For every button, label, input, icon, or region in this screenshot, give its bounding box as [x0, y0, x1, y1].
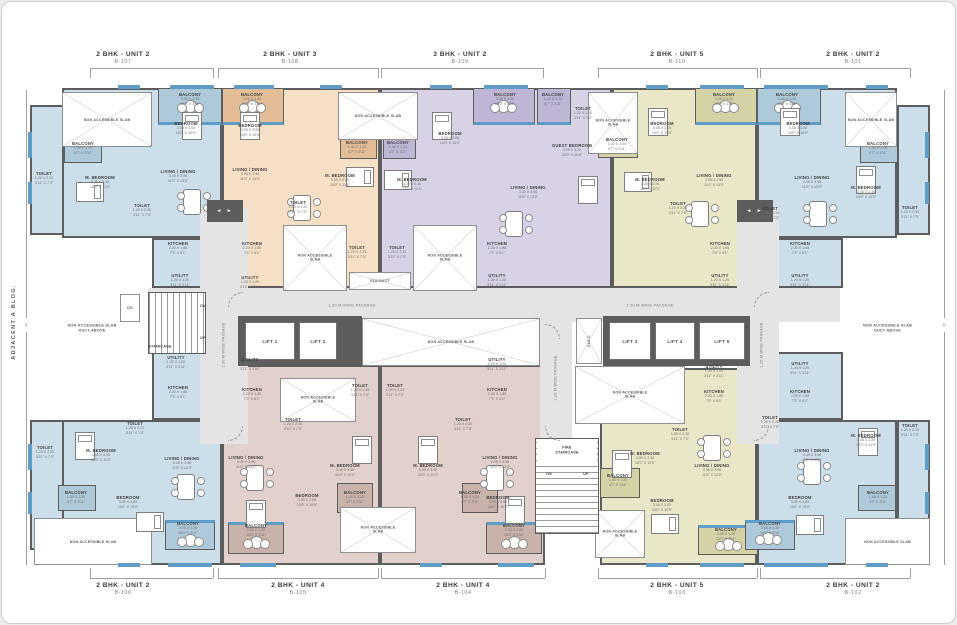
room-label: TOILET1.20 X 2.203'11" X 7'3"	[386, 383, 404, 397]
room-label: UTILITY1.20 X 1.203'11" X 3'11"	[790, 361, 810, 375]
side-dim-line	[944, 90, 945, 318]
room-label: KITCHEN2.20 X 1.857'3" X 6'1"	[487, 387, 507, 401]
room-label: TOILET1.20 X 2.203'11" X 7'3"	[388, 245, 406, 259]
dining-chair	[171, 477, 179, 485]
window	[28, 132, 32, 158]
plan-label: DN	[546, 472, 552, 476]
dining-table	[691, 201, 709, 227]
dining-chair	[829, 204, 837, 212]
room-dim-imperial: 4'7" X 3'11"	[607, 483, 629, 487]
dim-break: ≈	[940, 323, 949, 327]
room-dim-imperial: 7'3" X 6'1"	[242, 251, 262, 255]
room-label: BALCONY3.05 X 1.2010'0" X 3'11"	[503, 523, 525, 537]
room-label: UTILITY1.20 X 1.203'11" X 3'11"	[240, 275, 260, 289]
room-dim-imperial: 4'7" X 3'11"	[459, 500, 481, 504]
bracket-tick	[757, 568, 758, 578]
room-dim-imperial: 10'0" X 10'6"	[552, 153, 592, 157]
room-label: GUEST BEDROOM3.05 X 3.2010'0" X 10'6"	[552, 143, 592, 157]
dining-table	[703, 435, 721, 461]
bed-pillow	[615, 453, 629, 460]
bed-pillow	[783, 111, 797, 118]
window	[28, 444, 32, 470]
room-label: KITCHEN2.20 X 1.857'3" X 6'1"	[790, 389, 810, 403]
room-label: TOILET1.20 X 2.203'11" X 7'3"	[901, 205, 919, 219]
room-label: TOILET1.20 X 2.203'11" X 7'3"	[761, 415, 779, 429]
unit-code: B-107	[115, 59, 132, 65]
side-dim-line	[26, 332, 27, 565]
window	[498, 563, 534, 567]
plan-label: 1.20 M WIDE PASSAGE	[328, 303, 376, 308]
window	[168, 563, 212, 567]
dining-table	[809, 201, 827, 227]
room-dim-imperial: 4'7" X 3'11"	[346, 150, 368, 154]
room-dim-imperial: 3'11" X 7'3"	[133, 213, 151, 217]
room-dim-imperial: 3'11" X 3'11"	[704, 374, 724, 378]
slab-label: NON ACCESSIBLE SLAB	[301, 396, 336, 405]
plan-label: DN	[200, 304, 206, 308]
room-label: BEDROOM3.05 X 3.0510'0" X 10'0"	[295, 493, 318, 507]
room-label: BEDROOM3.05 X 3.0510'0" X 10'0"	[788, 495, 811, 509]
plan-label: UP	[200, 336, 205, 340]
lift-door-indicator: ◄ ►	[207, 200, 243, 222]
dining-chair	[803, 216, 811, 224]
unit-code: B-103	[669, 590, 686, 596]
room-label: M. BEDROOM3.05 X 3.3510'0" X 11'0"	[86, 448, 116, 462]
dining-chair	[797, 474, 805, 482]
room-label: BEDROOM3.05 X 3.0510'0" X 10'0"	[174, 121, 197, 135]
room-dim-imperial: 10'0" X 10'0"	[438, 141, 461, 145]
window	[764, 85, 808, 89]
room-dim-imperial: 3'11" X 3'11"	[487, 367, 507, 371]
plan-label: 1.20 M WIDE PASSAGE	[760, 322, 765, 367]
window	[925, 492, 929, 514]
side-dim-line	[26, 90, 27, 318]
bed	[578, 176, 598, 204]
bed-pillow	[581, 179, 595, 186]
room-label: KITCHEN2.20 X 1.857'3" X 6'1"	[168, 385, 188, 399]
bracket-tick	[218, 568, 219, 578]
room-label: UTILITY1.20 X 1.203'11" X 3'11"	[487, 357, 507, 371]
room-dim-imperial: 11'0" X 13'0"	[510, 195, 545, 199]
room-dim-imperial: 11'0" X 13'0"	[164, 466, 199, 470]
window	[764, 563, 808, 567]
room-dim-imperial: 3'11" X 7'3"	[35, 181, 53, 185]
slab-label: ELE.C	[587, 335, 591, 347]
room-label: BALCONY3.05 X 1.2010'0" X 3'11"	[713, 92, 735, 106]
room-label: UTILITY1.20 X 1.203'11" X 3'11"	[790, 273, 810, 287]
bracket-tick	[90, 68, 91, 78]
bracket-tick	[760, 68, 761, 78]
room-dim-imperial: 10'0" X 11'0"	[413, 473, 443, 477]
bed-pillow	[435, 115, 449, 122]
room-dim-imperial: 10'0" X 10'0"	[786, 131, 809, 135]
window	[866, 563, 888, 567]
room-dim-imperial: 3'11" X 3'11"	[487, 283, 507, 287]
bed-pillow	[651, 111, 665, 118]
window	[170, 85, 214, 89]
slab-label: NON ACCESSIBLE SLAB	[864, 539, 911, 543]
unit-title: 2 BHK - UNIT 2	[96, 51, 150, 58]
room-dim-imperial: 11'0" X 13'0"	[228, 465, 263, 469]
room-label: TOILET1.20 X 2.203'11" X 7'3"	[669, 201, 687, 215]
room-dim-imperial: 3'11" X 3'11"	[170, 283, 190, 287]
bed	[651, 514, 679, 534]
bed-pillow	[814, 518, 821, 532]
room-dim-imperial: 3'11" X 7'3"	[388, 255, 406, 259]
balcony-chair	[772, 535, 782, 545]
room-dim-imperial: 10'0" X 11'0"	[851, 195, 881, 199]
room-label: KITCHEN2.20 X 1.857'3" X 6'1"	[242, 387, 262, 401]
duct-area-label: NON ACCESSIBLE SLAB DUCT ABOVE	[67, 323, 116, 332]
window	[700, 85, 744, 89]
bed-pillow	[249, 503, 263, 510]
unit-title: 2 BHK - UNIT 5	[650, 582, 704, 589]
dining-chair	[177, 192, 185, 200]
room-dim-imperial: 3'11" X 7'3"	[126, 431, 144, 435]
plan-label: 1.20 M WIDE PASSAGE	[222, 322, 227, 367]
room-label: BALCONY3.05 X 1.2010'0" X 3'11"	[241, 92, 263, 106]
room-label: BALCONY1.40 X 1.204'7" X 3'11"	[459, 490, 481, 504]
room-dim-imperial: 10'0" X 11'0"	[397, 187, 427, 191]
floor-plan-canvas: ADJACENT A BLDG. NON ACCESSIBLE SLAB DUC…	[0, 0, 957, 625]
room-label: TOILET1.20 X 2.203'11" X 7'3"	[574, 106, 592, 120]
lift-1: LIFT 1	[245, 322, 295, 360]
room-label: M. BEDROOM3.05 X 3.3510'0" X 11'0"	[635, 177, 665, 191]
room-dim-imperial: 3'11" X 7'3"	[671, 437, 689, 441]
room-dim-imperial: 10'0" X 3'11"	[759, 531, 781, 535]
window	[320, 85, 342, 89]
dining-chair	[525, 226, 533, 234]
bracket-line	[90, 578, 213, 579]
room-label: UTILITY1.20 X 1.203'11" X 3'11"	[487, 273, 507, 287]
unit-code: B-106	[115, 590, 132, 596]
room-dim-imperial: 7'3" X 6'1"	[168, 251, 188, 255]
room-label: TOILET1.20 X 2.203'11" X 7'3"	[36, 445, 54, 459]
balcony-chair	[243, 539, 253, 549]
balcony-chair	[518, 539, 528, 549]
room-dim-imperial: 10'0" X 10'0"	[650, 508, 673, 512]
room-label: BALCONY1.40 X 1.204'7" X 3'11"	[65, 490, 87, 504]
dining-table	[183, 189, 201, 215]
room-label: UTILITY1.20 X 1.203'11" X 3'11"	[170, 273, 190, 287]
bracket-tick	[757, 68, 758, 78]
room-dim-imperial: 11'0" X 13'0"	[794, 185, 829, 189]
window	[118, 563, 140, 567]
window	[925, 132, 929, 158]
room-dim-imperial: 3'11" X 7'3"	[901, 433, 919, 437]
bed-pillow	[78, 435, 92, 442]
room-dim-imperial: 3'11" X 7'3"	[348, 255, 366, 259]
room-label: M. BEDROOM3.05 X 3.3510'0" X 11'0"	[851, 185, 881, 199]
bracket-line	[218, 578, 378, 579]
bracket-line	[218, 68, 378, 69]
room-dim-imperial: 11'0" X 13'0"	[482, 465, 517, 469]
room-dim-imperial: 7'3" X 6'1"	[242, 397, 262, 401]
room-dim-imperial: 11'0" X 13'0"	[232, 177, 267, 181]
window	[806, 563, 828, 567]
room-label: BALCONY3.05 X 1.2010'0" X 3'11"	[177, 521, 199, 535]
bracket-tick	[910, 68, 911, 78]
unit-code: B-105	[290, 590, 307, 596]
balcony-chair	[501, 539, 511, 549]
room-label: BALCONY3.05 X 1.2010'0" X 3'11"	[245, 523, 267, 537]
room-dim-imperial: 3'11" X 7'3"	[351, 393, 369, 397]
dining-chair	[240, 468, 248, 476]
room-label: BALCONY3.05 X 1.2010'0" X 3'11"	[776, 92, 798, 106]
room-dim-imperial: 7'3" X 6'1"	[790, 399, 810, 403]
room-label: BALCONY1.40 X 1.204'7" X 3'11"	[867, 141, 889, 155]
room-dim-imperial: 3'11" X 3'11"	[240, 367, 260, 371]
room-label: LIVING / DINING3.35 X 3.9611'0" X 13'0"	[164, 456, 199, 470]
side-dim-line	[944, 332, 945, 565]
bracket-tick	[381, 568, 382, 578]
room-label: BALCONY3.05 X 1.2010'0" X 3'11"	[759, 521, 781, 535]
slab-label: ELE.DUCT	[370, 279, 390, 283]
window	[646, 85, 668, 89]
dining-chair	[177, 204, 185, 212]
adjacent-building-label: ADJACENT A BLDG.	[11, 284, 17, 359]
room-label: BEDROOM3.05 X 3.0510'0" X 10'0"	[116, 495, 139, 509]
room-dim-imperial: 4'7" X 3'11"	[606, 147, 628, 151]
room-dim-imperial: 3'11" X 7'3"	[36, 455, 54, 459]
room-label: TOILET1.20 X 2.203'11" X 7'3"	[671, 427, 689, 441]
room-label: M. BEDROOM3.05 X 3.3510'0" X 11'0"	[413, 463, 443, 477]
room-dim-imperial: 3'11" X 3'11"	[790, 371, 810, 375]
dining-chair	[480, 480, 488, 488]
dining-chair	[823, 474, 831, 482]
bracket-line	[598, 578, 757, 579]
room-label: M. BEDROOM3.05 X 3.3510'0" X 11'0"	[330, 463, 360, 477]
window	[118, 85, 140, 89]
room-label: BEDROOM3.05 X 3.0510'0" X 10'0"	[650, 498, 673, 512]
dining-chair	[499, 214, 507, 222]
room-label: BEDROOM3.05 X 3.0510'0" X 10'0"	[486, 495, 509, 509]
dining-chair	[506, 468, 514, 476]
unit-code: B-108	[282, 59, 299, 65]
bed	[796, 515, 824, 535]
room-label: UTILITY1.20 X 1.203'11" X 3'11"	[166, 355, 186, 369]
room-dim-imperial: 4'7" X 3'11"	[65, 500, 87, 504]
room-label: TOILET1.20 X 2.203'11" X 7'3"	[351, 383, 369, 397]
bracket-tick	[760, 568, 761, 578]
bracket-tick	[213, 568, 214, 578]
dining-chair	[171, 489, 179, 497]
dining-chair	[313, 210, 321, 218]
unit-title: 2 BHK - UNIT 4	[436, 582, 490, 589]
balcony-chair	[260, 539, 270, 549]
dining-chair	[506, 480, 514, 488]
room-dim-imperial: 11'0" X 13'0"	[160, 179, 195, 183]
room-dim-imperial: 11'0" X 13'0"	[696, 183, 731, 187]
bracket-tick	[378, 568, 379, 578]
slab-label: NON ACCESSIBLE SLAB	[70, 539, 117, 543]
window	[646, 563, 668, 567]
room-dim-imperial: 4'7" X 3'11"	[867, 500, 889, 504]
room-label: KITCHEN2.20 X 1.857'3" X 6'1"	[710, 241, 730, 255]
lift-4: LIFT 4	[655, 322, 695, 360]
balcony-chair	[715, 541, 725, 551]
room-dim-imperial: 3'11" X 3'11"	[790, 283, 810, 287]
room-dim-imperial: 3'11" X 3'11"	[166, 365, 186, 369]
room-label: LIVING / DINING3.35 X 3.9611'0" X 13'0"	[160, 169, 195, 183]
room-dim-imperial: 3'11" X 7'3"	[669, 211, 687, 215]
room-dim-imperial: 11'0" X 13'0"	[694, 473, 729, 477]
window	[806, 85, 828, 89]
bracket-tick	[545, 568, 546, 578]
bed	[418, 436, 438, 464]
dining-chair	[685, 216, 693, 224]
dining-chair	[197, 477, 205, 485]
room-dim-imperial: 10'0" X 3'11"	[494, 102, 516, 106]
room-label: BALCONY3.05 X 1.2010'0" X 3'11"	[179, 92, 201, 106]
room-label: TOILET1.20 X 2.203'11" X 7'3"	[348, 245, 366, 259]
dining-chair	[240, 480, 248, 488]
bracket-tick	[381, 68, 382, 78]
room-label: LIVING / DINING3.35 X 3.9611'0" X 13'0"	[694, 463, 729, 477]
room-dim-imperial: 3'11" X 7'3"	[574, 116, 592, 120]
room-dim-imperial: 3'11" X 7'3"	[761, 216, 779, 220]
dining-chair	[723, 438, 731, 446]
slab-label: DG	[127, 306, 133, 310]
room-label: LIVING / DINING3.35 X 3.9611'0" X 13'0"	[696, 173, 731, 187]
room-dim-imperial: 4'7" X 3'11"	[387, 150, 409, 154]
room-dim-imperial: 7'3" X 6'1"	[487, 397, 507, 401]
room-label: M. BEDROOM3.05 X 3.3510'0" X 11'0"	[630, 451, 660, 465]
bed-pillow	[355, 439, 369, 446]
room-dim-imperial: 4'7" X 3'11"	[542, 102, 564, 106]
window	[28, 492, 32, 514]
unit-code: B-104	[455, 590, 472, 596]
dining-chair	[499, 226, 507, 234]
dining-chair	[266, 480, 274, 488]
room-dim-imperial: 10'0" X 10'0"	[174, 131, 197, 135]
room-label: KITCHEN2.20 X 1.857'3" X 6'1"	[487, 241, 507, 255]
unit-title: 2 BHK - UNIT 4	[271, 582, 325, 589]
dining-table	[177, 474, 195, 500]
room-dim-imperial: 4'7" X 3'11"	[344, 500, 366, 504]
bracket-line	[90, 68, 213, 69]
room-dim-imperial: 10'0" X 10'0"	[788, 505, 811, 509]
room-label: UTILITY1.20 X 1.203'11" X 3'11"	[710, 273, 730, 287]
dining-table	[505, 211, 523, 237]
room-label: KITCHEN2.20 X 1.857'3" X 6'1"	[242, 241, 262, 255]
room-dim-imperial: 10'0" X 10'0"	[486, 505, 509, 509]
bracket-tick	[543, 68, 544, 78]
room-dim-imperial: 10'0" X 11'0"	[86, 458, 116, 462]
balcony-chair	[194, 537, 204, 547]
dining-chair	[203, 192, 211, 200]
room-dim-imperial: 4'7" X 3'11"	[867, 151, 889, 155]
room-dim-imperial: 10'0" X 11'0"	[635, 187, 665, 191]
slab-label: NON ACCESSIBLE SLAB	[361, 526, 396, 535]
room-dim-imperial: 7'3" X 6'1"	[790, 251, 810, 255]
dining-chair	[723, 450, 731, 458]
room-label: KITCHEN2.20 X 1.857'3" X 6'1"	[790, 241, 810, 255]
dining-chair	[711, 216, 719, 224]
room-dim-imperial: 3'11" X 7'3"	[454, 427, 472, 431]
bed-pillow	[243, 115, 257, 122]
bed-pillow	[364, 170, 371, 184]
unit-title: 2 BHK - UNIT 5	[650, 51, 704, 58]
dining-chair	[797, 462, 805, 470]
lift-2: LIFT 2	[299, 322, 337, 360]
room-label: LIVING / DINING3.35 X 3.9611'0" X 13'0"	[232, 167, 267, 181]
unit-code: B-101	[845, 59, 862, 65]
unit-title: 2 BHK - UNIT 2	[826, 51, 880, 58]
room-label: TOILET1.20 X 2.203'11" X 7'3"	[761, 206, 779, 220]
window	[484, 85, 528, 89]
room-dim-imperial: 3'11" X 7'3"	[901, 215, 919, 219]
bracket-tick	[598, 568, 599, 578]
room-dim-imperial: 7'3" X 6'1"	[168, 395, 188, 399]
room-label: LIVING / DINING3.35 X 3.9611'0" X 13'0"	[510, 185, 545, 199]
dim-break: ≈	[22, 323, 31, 327]
unit-code: B-110	[669, 59, 686, 65]
window	[925, 182, 929, 204]
room-dim-imperial: 10'0" X 10'0"	[116, 505, 139, 509]
bracket-tick	[90, 568, 91, 578]
room-label: BALCONY1.40 X 1.204'7" X 3'11"	[387, 140, 409, 154]
window	[866, 85, 888, 89]
room-label: BEDROOM3.05 X 3.0510'0" X 10'0"	[786, 121, 809, 135]
unit-code: B-109	[452, 59, 469, 65]
window	[430, 85, 452, 89]
room-label: UTILITY1.20 X 1.203'11" X 3'11"	[240, 357, 260, 371]
room-dim-imperial: 10'0" X 3'11"	[503, 533, 525, 537]
room-label: BALCONY1.40 X 1.204'7" X 3'11"	[72, 141, 94, 155]
bracket-tick	[910, 568, 911, 578]
dining-chair	[829, 216, 837, 224]
balcony-chair	[755, 535, 765, 545]
room-label: BALCONY3.05 X 1.2010'0" X 3'11"	[494, 92, 516, 106]
bracket-line	[760, 578, 910, 579]
slab-label: NON ACCESSIBLE SLAB	[355, 114, 402, 118]
room-dim-imperial: 10'0" X 11'0"	[330, 473, 360, 477]
window	[700, 563, 744, 567]
room-label: UTILITY1.20 X 1.203'11" X 3'11"	[704, 364, 724, 378]
slab-label: NON ACCESSIBLE SLAB	[613, 391, 648, 400]
room-dim-imperial: 10'0" X 3'11"	[177, 531, 199, 535]
slab-label: NON ACCESSIBLE SLAB	[596, 119, 631, 128]
room-label: BALCONY1.40 X 1.204'7" X 3'11"	[542, 92, 564, 106]
bracket-tick	[598, 68, 599, 78]
room-label: BEDROOM3.05 X 3.0510'0" X 10'0"	[238, 123, 261, 137]
room-dim-imperial: 3'11" X 7'3"	[289, 210, 307, 214]
bed	[136, 512, 164, 532]
window	[28, 182, 32, 204]
bed-pillow	[508, 499, 522, 506]
slab-label: NON ACCESSIBLE SLAB	[428, 340, 475, 344]
room-dim-imperial: 7'3" X 6'1"	[487, 251, 507, 255]
room-label: BALCONY3.05 X 1.2010'0" X 3'11"	[715, 527, 737, 541]
plan-label: FIRE STAIRCASE	[555, 445, 578, 454]
room-label: BALCONY1.40 X 1.204'7" X 3'11"	[606, 137, 628, 151]
plan-label: 1.20 M WIDE PASSAGE	[626, 303, 674, 308]
room-label: LIVING / DINING3.35 X 3.9611'0" X 13'0"	[228, 455, 263, 469]
slab-label: NON ACCESSIBLE SLAB	[84, 117, 131, 121]
room-label: BALCONY1.40 X 1.204'7" X 3'11"	[607, 473, 629, 487]
dining-chair	[697, 438, 705, 446]
room-label: LIVING / DINING3.35 X 3.9611'0" X 13'0"	[794, 448, 829, 462]
window	[420, 563, 442, 567]
room-dim-imperial: 3'11" X 3'11"	[240, 285, 260, 289]
bracket-line	[381, 578, 545, 579]
room-label: BALCONY1.40 X 1.204'7" X 3'11"	[346, 140, 368, 154]
room-dim-imperial: 4'7" X 3'11"	[72, 151, 94, 155]
room-label: M. BEDROOM3.05 X 3.3510'0" X 11'0"	[325, 173, 355, 187]
room-dim-imperial: 3'11" X 7'3"	[284, 427, 302, 431]
dining-chair	[711, 204, 719, 212]
